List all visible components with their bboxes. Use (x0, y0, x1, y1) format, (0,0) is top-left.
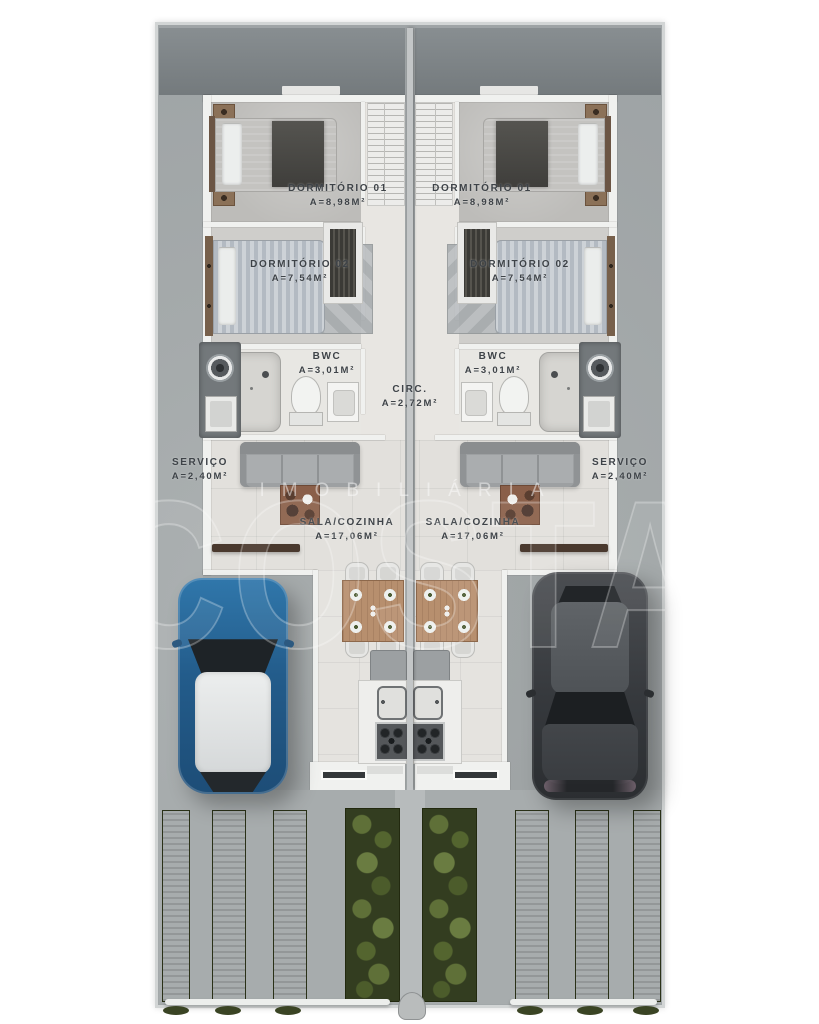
grass-tuft (163, 1006, 189, 1015)
room-name: SERVIÇO (592, 457, 648, 468)
grass-strip (515, 810, 549, 1002)
rear-window (200, 772, 266, 792)
room-area: A=2,72M² (382, 397, 438, 411)
label-dormitorio1-right: DORMITÓRIO 01 A=8,98M² (432, 182, 532, 210)
back-door-threshold (282, 86, 340, 95)
hedge-garden (422, 808, 477, 1002)
backyard (415, 28, 661, 95)
stove-cooktop (375, 722, 409, 761)
kitchen-sink (413, 686, 443, 720)
room-area: A=7,54M² (470, 272, 570, 286)
side-mirror (525, 689, 537, 699)
grass-tuft (517, 1006, 543, 1015)
front-curb (165, 999, 390, 1005)
dining-table (416, 580, 478, 642)
room-name: CIRC. (392, 384, 427, 395)
label-bwc-left: BWC A=3,01M² (299, 350, 355, 378)
toilet (291, 376, 321, 416)
room-area: A=3,01M² (465, 364, 521, 378)
property-lot: DORMITÓRIO 01 A=8,98M² DORMITÓRIO 01 A=8… (155, 22, 665, 1008)
wall (455, 349, 459, 414)
room-area: A=2,40M² (172, 470, 228, 484)
grass-tuft (215, 1006, 241, 1015)
grass-strip (162, 810, 190, 1002)
car-blue (178, 578, 288, 794)
grass-strip (212, 810, 246, 1002)
hedge-garden (345, 808, 400, 1002)
label-circulacao: CIRC. A=2,72M² (382, 383, 438, 411)
room-area: A=7,54M² (250, 272, 350, 286)
windshield (545, 692, 635, 726)
car-hood (542, 724, 638, 784)
front-door-threshold (367, 766, 403, 774)
wall (313, 570, 318, 762)
car-dark (532, 572, 648, 800)
side-mirror (171, 639, 183, 649)
grass-strip (575, 810, 609, 1002)
laundry-tank (205, 396, 237, 432)
room-name: DORMITÓRIO 02 (250, 259, 350, 270)
laundry-tank (583, 396, 615, 432)
front-door-threshold (417, 766, 453, 774)
room-name: SERVIÇO (172, 457, 228, 468)
label-servico-right: SERVIÇO A=2,40M² (592, 456, 648, 484)
room-name: DORMITÓRIO 02 (470, 259, 570, 270)
label-sala-cozinha-left: SALA/COZINHA A=17,06M² (300, 516, 395, 544)
wall (361, 349, 365, 414)
wall (502, 570, 507, 762)
backyard (159, 28, 405, 95)
label-dormitorio2-left: DORMITÓRIO 02 A=7,54M² (250, 258, 350, 286)
stove-cooktop (411, 722, 445, 761)
car-front (544, 780, 636, 792)
label-dormitorio1-left: DORMITÓRIO 01 A=8,98M² (288, 182, 388, 210)
room-name: DORMITÓRIO 01 (432, 183, 532, 194)
label-servico-left: SERVIÇO A=2,40M² (172, 456, 228, 484)
label-sala-cozinha-right: SALA/COZINHA A=17,06M² (426, 516, 521, 544)
wall (415, 95, 617, 102)
room-area: A=17,06M² (300, 530, 395, 544)
nightstand (585, 190, 607, 206)
laundry-nook (579, 342, 621, 438)
double-bed-bedroom1 (483, 118, 605, 192)
room-name: BWC (313, 351, 342, 362)
car-roof (195, 672, 271, 774)
room-name: SALA/COZINHA (426, 517, 521, 528)
wall (203, 570, 317, 575)
label-dormitorio2-right: DORMITÓRIO 02 A=7,54M² (470, 258, 570, 286)
grass-strip (633, 810, 661, 1002)
bed-headboard (607, 236, 615, 336)
sofa (460, 442, 580, 487)
grass-strip (273, 810, 307, 1002)
double-bed-bedroom2 (495, 240, 607, 334)
entry-gate-post (398, 992, 426, 1020)
label-bwc-right: BWC A=3,01M² (465, 350, 521, 378)
room-area: A=2,40M² (592, 470, 648, 484)
room-area: A=17,06M² (426, 530, 521, 544)
front-curb (510, 999, 657, 1005)
toilet-tank (497, 412, 531, 426)
grass-tuft (577, 1006, 603, 1015)
nightstand (213, 190, 235, 206)
room-area: A=3,01M² (299, 364, 355, 378)
bed-headboard (205, 236, 213, 336)
dining-table (342, 580, 404, 642)
washing-machine (206, 354, 234, 382)
toilet-tank (289, 412, 323, 426)
front-window (321, 770, 367, 780)
car-roof (551, 602, 629, 694)
double-bed-bedroom2 (213, 240, 325, 334)
room-name: DORMITÓRIO 01 (288, 183, 388, 194)
bathroom-sink (327, 382, 359, 422)
wall (203, 95, 405, 102)
room-area: A=8,98M² (288, 196, 388, 210)
front-window (453, 770, 499, 780)
toilet (499, 376, 529, 416)
double-bed-bedroom1 (215, 118, 337, 192)
grass-tuft (275, 1006, 301, 1015)
sideboard (212, 544, 300, 552)
bed-headboard (605, 116, 611, 192)
grass-tuft (633, 1006, 659, 1015)
laundry-nook (199, 342, 241, 438)
windshield (188, 636, 278, 676)
sideboard (520, 544, 608, 552)
kitchen-sink (377, 686, 407, 720)
floor-plan-render: DORMITÓRIO 01 A=8,98M² DORMITÓRIO 01 A=8… (0, 0, 819, 1024)
washing-machine (586, 354, 614, 382)
room-name: BWC (479, 351, 508, 362)
room-name: SALA/COZINHA (300, 517, 395, 528)
bathroom-sink (461, 382, 493, 422)
room-area: A=8,98M² (432, 196, 532, 210)
sofa (240, 442, 360, 487)
back-door-threshold (480, 86, 538, 95)
